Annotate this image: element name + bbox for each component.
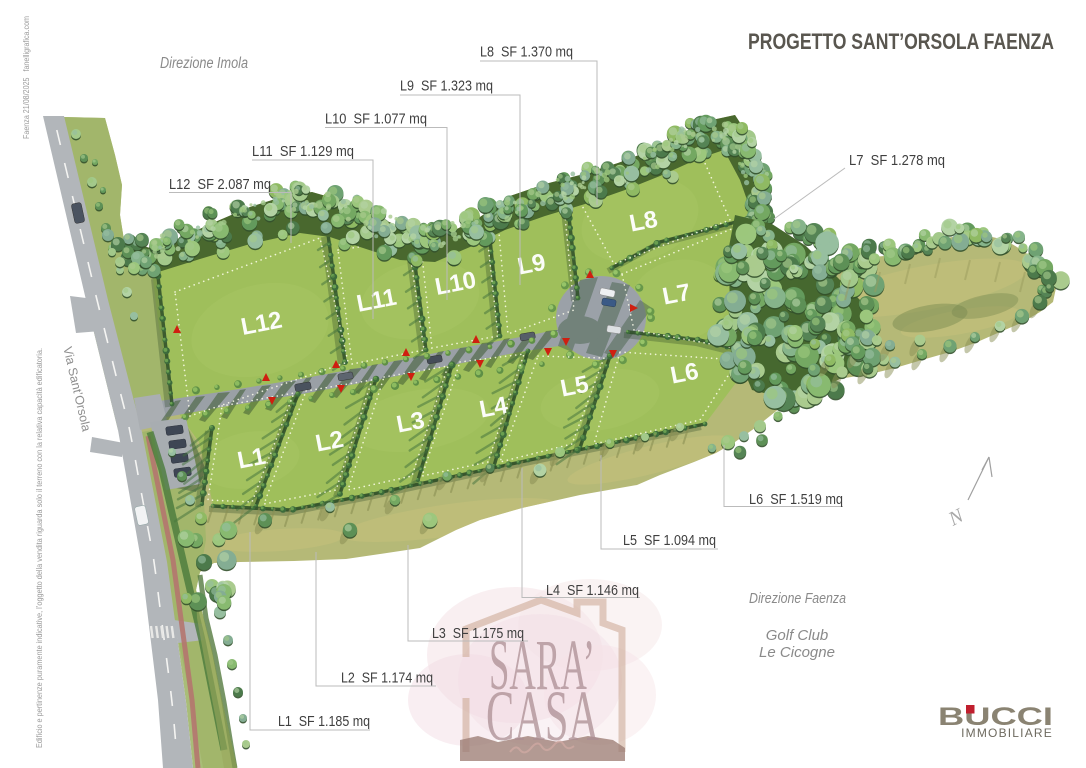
svg-text:Golf Club: Golf Club xyxy=(766,627,829,644)
svg-text:L1 SF 1.185 mq: L1 SF 1.185 mq xyxy=(278,713,370,730)
svg-text:L7: L7 xyxy=(660,279,693,311)
svg-text:L12 SF 2.087 mq: L12 SF 2.087 mq xyxy=(169,176,271,193)
svg-text:L2: L2 xyxy=(313,426,346,458)
svg-text:L7 SF 1.278 mq: L7 SF 1.278 mq xyxy=(849,152,945,169)
svg-text:Direzione Imola: Direzione Imola xyxy=(160,55,248,72)
svg-text:L4: L4 xyxy=(477,392,510,424)
svg-text:L3: L3 xyxy=(394,407,427,439)
svg-text:IMMOBILIARE: IMMOBILIARE xyxy=(961,726,1053,740)
svg-text:Le Cicogne: Le Cicogne xyxy=(759,644,835,661)
svg-text:L5 SF 1.094 mq: L5 SF 1.094 mq xyxy=(623,532,716,549)
svg-text:L10 SF 1.077 mq: L10 SF 1.077 mq xyxy=(325,111,427,128)
svg-text:L11 SF 1.129 mq: L11 SF 1.129 mq xyxy=(252,143,354,160)
svg-text:L9 SF 1.323 mq: L9 SF 1.323 mq xyxy=(400,78,493,95)
svg-text:L3 SF 1.175 mq: L3 SF 1.175 mq xyxy=(432,625,524,642)
svg-text:Edificio e pertinenze purament: Edificio e pertinenze puramente indicati… xyxy=(35,348,44,748)
svg-text:L1: L1 xyxy=(235,443,268,475)
svg-text:Via Sant’Orsola: Via Sant’Orsola xyxy=(60,345,93,433)
svg-text:L6 SF 1.519 mq: L6 SF 1.519 mq xyxy=(749,491,843,508)
svg-text:CASA: CASA xyxy=(486,676,599,756)
svg-text:PROGETTO SANT’ORSOLA FAENZA: PROGETTO SANT’ORSOLA FAENZA xyxy=(748,29,1054,54)
svg-text:L4 SF 1.146 mq: L4 SF 1.146 mq xyxy=(546,582,639,599)
svg-text:L8 SF 1.370 mq: L8 SF 1.370 mq xyxy=(480,44,573,61)
svg-text:N: N xyxy=(944,504,968,531)
svg-text:Direzione Faenza: Direzione Faenza xyxy=(749,590,846,607)
svg-text:L6: L6 xyxy=(668,358,701,390)
svg-text:L5: L5 xyxy=(558,371,591,403)
svg-text:Faenza 21/08/2025 fanelligra: Faenza 21/08/2025 fanelligrafica.com xyxy=(22,16,31,139)
svg-text:L8: L8 xyxy=(627,206,660,238)
svg-text:L2 SF 1.174 mq: L2 SF 1.174 mq xyxy=(341,670,433,687)
